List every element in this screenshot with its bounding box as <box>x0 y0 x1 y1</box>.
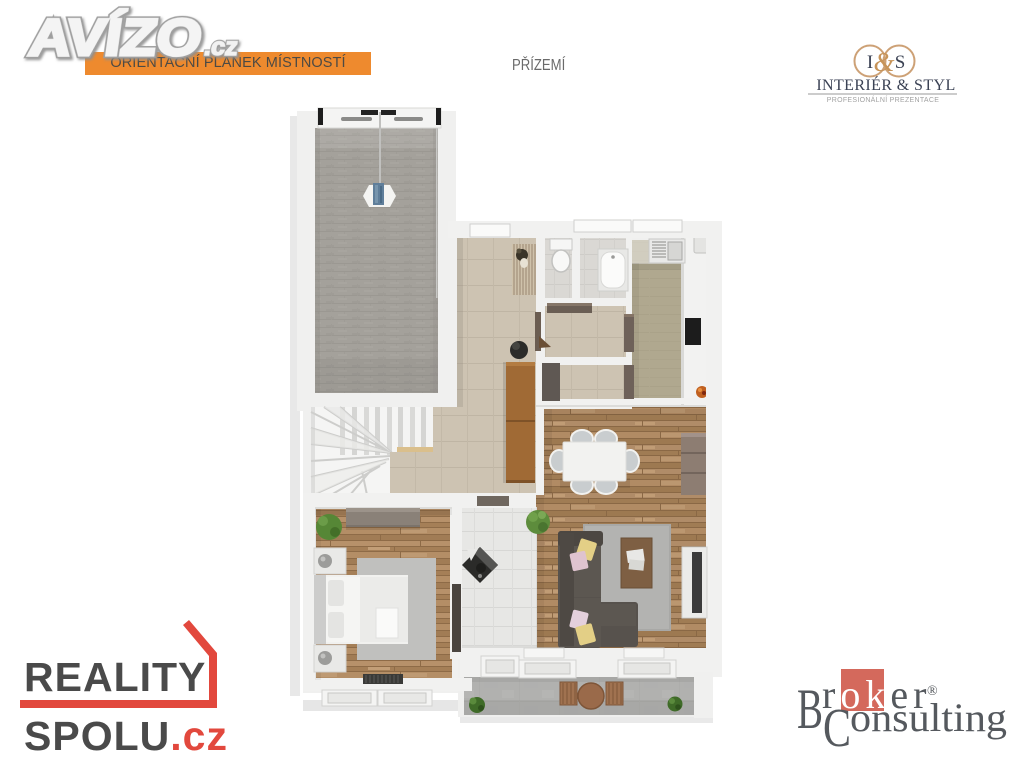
svg-text:B: B <box>797 678 823 741</box>
svg-text:.cz: .cz <box>202 33 239 61</box>
svg-text:onsulting: onsulting <box>850 695 1007 740</box>
svg-text:C: C <box>823 697 851 758</box>
svg-text:REALITY: REALITY <box>24 654 206 700</box>
svg-text:AVÍZO: AVÍZO <box>26 9 206 66</box>
svg-text:SPOLU.cz: SPOLU.cz <box>24 713 228 759</box>
